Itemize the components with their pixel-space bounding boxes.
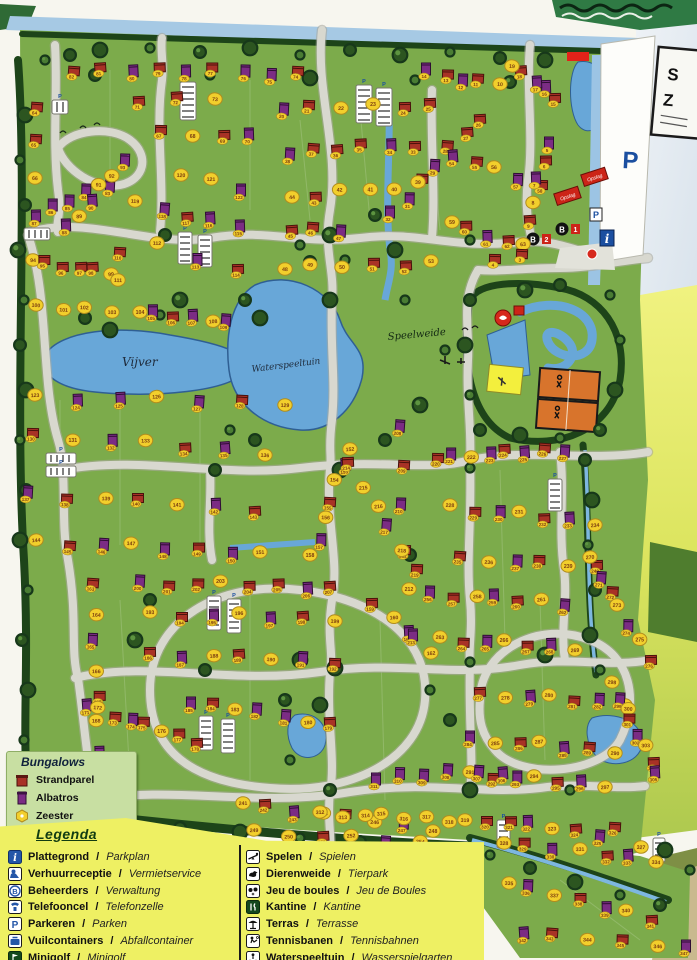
svg-text:21: 21 [304, 109, 310, 114]
svg-text:96: 96 [58, 271, 64, 276]
plot-marker: 290 [607, 746, 622, 759]
tree-icon [146, 44, 155, 53]
svg-text:131: 131 [69, 438, 78, 444]
plot-marker: 73 [207, 92, 222, 105]
svg-text:P: P [59, 447, 63, 453]
svg-text:247: 247 [398, 828, 406, 833]
svg-text:311: 311 [370, 784, 378, 789]
legend-label-nl: Kantine [266, 901, 306, 913]
plot-marker: 89 [72, 210, 87, 223]
svg-text:330: 330 [547, 854, 555, 859]
svg-text:147: 147 [127, 541, 136, 547]
svg-text:111: 111 [114, 278, 122, 284]
svg-text:229: 229 [469, 515, 477, 520]
svg-text:115: 115 [234, 231, 242, 236]
svg-text:189: 189 [233, 658, 241, 664]
svg-text:59: 59 [449, 220, 455, 226]
dark-green-patch [648, 542, 697, 642]
svg-text:333: 333 [623, 860, 631, 866]
svg-text:93: 93 [120, 165, 126, 170]
svg-text:282: 282 [593, 704, 601, 709]
plot-marker: 91 [91, 178, 106, 191]
plot-marker: 66 [28, 172, 43, 185]
zeester-icon [15, 809, 29, 823]
plot-marker: 258 [470, 590, 485, 603]
svg-text:31: 31 [405, 204, 411, 209]
svg-text:145: 145 [64, 549, 72, 555]
tree-icon [494, 52, 506, 64]
svg-text:P: P [203, 229, 207, 235]
plot-marker: 303 [638, 739, 653, 752]
svg-text:126: 126 [152, 394, 161, 401]
svg-text:206: 206 [302, 593, 310, 598]
svg-text:325: 325 [593, 841, 601, 847]
tree-icon [458, 338, 473, 353]
legend-label-de: Kantine [323, 901, 360, 913]
tree-icon [16, 436, 25, 445]
tree-icon [20, 296, 29, 305]
svg-text:77: 77 [208, 71, 214, 76]
svg-text:249: 249 [250, 828, 259, 834]
svg-text:316: 316 [399, 816, 408, 823]
beheerders-icon: B [8, 884, 22, 898]
legend-label-de: Terrasse [316, 918, 358, 930]
plot-marker: 193 [143, 606, 158, 619]
legend-label-de: Parken [92, 918, 127, 930]
tree-icon [585, 493, 600, 508]
plot-marker: 126 [149, 390, 164, 403]
svg-text:86: 86 [48, 210, 54, 215]
legend-title: Legenda [36, 826, 97, 842]
svg-text:139: 139 [102, 496, 111, 502]
svg-text:194: 194 [176, 621, 184, 626]
svg-text:88: 88 [62, 230, 68, 235]
plot-marker: 123 [28, 389, 43, 402]
svg-text:168: 168 [92, 718, 101, 724]
plot-marker: 236 [481, 555, 496, 568]
svg-text:342: 342 [519, 938, 527, 944]
tree-icon [463, 783, 478, 798]
svg-text:160: 160 [390, 615, 399, 621]
svg-text:231: 231 [515, 509, 524, 515]
tree-icon [18, 108, 33, 123]
parking-strip: P [548, 473, 562, 511]
svg-text:235: 235 [454, 559, 462, 565]
svg-text:91: 91 [95, 182, 101, 188]
svg-text:37: 37 [308, 152, 314, 157]
tree-icon [594, 424, 606, 436]
tree-icon [413, 398, 428, 413]
svg-text:125: 125 [115, 403, 123, 408]
plot-marker: 215 [356, 481, 371, 494]
svg-text:323: 323 [548, 826, 557, 832]
tree-icon [379, 434, 391, 446]
svg-text:208: 208 [393, 431, 401, 437]
vuilcontainer-icon [8, 934, 22, 948]
svg-text:97: 97 [77, 271, 83, 276]
legend-label-nl: Verhuurreceptie [28, 868, 112, 880]
plot-marker: 285 [488, 737, 503, 750]
svg-text:38: 38 [285, 159, 291, 164]
plot-marker: 63 [515, 237, 530, 250]
plot-marker: 273 [610, 599, 625, 612]
terras-icon [246, 917, 260, 931]
svg-text:19: 19 [509, 64, 515, 70]
plot-marker: 327 [634, 841, 649, 854]
svg-text:122: 122 [235, 195, 243, 200]
plot-marker: 40 [387, 183, 402, 196]
svg-text:149: 149 [193, 551, 201, 556]
svg-text:221: 221 [445, 459, 453, 464]
legend-row-reception: Verhuurreceptie/Vermietservice [8, 866, 201, 882]
svg-text:117: 117 [182, 221, 190, 227]
plot-marker: 102 [77, 301, 92, 314]
tree-icon [426, 686, 435, 695]
svg-text:290: 290 [610, 751, 619, 757]
plot-marker: 234 [587, 518, 602, 531]
plot-marker: 8 [525, 196, 540, 209]
svg-text:55: 55 [472, 165, 478, 170]
legend-label-de: Minigolf [87, 952, 125, 960]
svg-text:P: P [58, 94, 62, 100]
svg-text:265: 265 [481, 646, 489, 651]
tree-icon [606, 291, 615, 300]
svg-text:39: 39 [415, 180, 421, 186]
kantine-building [487, 364, 524, 394]
svg-text:307: 307 [472, 776, 480, 782]
strandparel-icon [15, 773, 29, 787]
plot-marker: 22 [334, 102, 349, 115]
svg-text:243: 243 [289, 817, 297, 823]
svg-text:281: 281 [568, 704, 576, 709]
svg-text:103: 103 [108, 310, 117, 316]
tree-icon [64, 49, 76, 61]
svg-text:144: 144 [32, 538, 41, 545]
svg-text:58: 58 [537, 189, 543, 194]
tree-icon [388, 243, 403, 258]
svg-text:18: 18 [517, 74, 523, 79]
plot-marker: 162 [423, 646, 438, 659]
svg-text:35: 35 [356, 147, 362, 152]
svg-text:95: 95 [40, 264, 46, 269]
plot-marker: 196 [232, 607, 247, 620]
svg-text:113: 113 [192, 265, 200, 270]
plot-marker: 180 [300, 716, 315, 729]
tree-icon [393, 48, 408, 63]
svg-text:267: 267 [522, 649, 530, 654]
svg-text:220: 220 [432, 462, 440, 467]
svg-text:72: 72 [173, 100, 179, 105]
plot-marker: 249 [247, 824, 262, 837]
park-map-page: P Opslag Opslag P i B 1 B 2 [0, 0, 697, 960]
svg-text:261: 261 [537, 597, 546, 604]
svg-text:250: 250 [284, 834, 293, 840]
tree-icon [654, 899, 666, 911]
svg-text:345: 345 [616, 943, 624, 948]
legend-label-de: Vermietservice [129, 868, 201, 880]
svg-text:239: 239 [564, 564, 573, 570]
plot-marker: 252 [343, 829, 358, 842]
svg-text:278: 278 [501, 695, 510, 701]
tree-icon [249, 434, 261, 446]
svg-text:241: 241 [239, 801, 248, 807]
tree-icon [296, 241, 305, 250]
plot-marker: 19 [504, 59, 519, 72]
plot-marker: 269 [567, 643, 582, 656]
tree-icon [568, 875, 583, 890]
tree-icon [538, 53, 553, 68]
svg-text:336: 336 [522, 891, 530, 896]
svg-text:138: 138 [61, 502, 69, 507]
svg-text:65: 65 [31, 142, 37, 147]
svg-text:163: 163 [87, 586, 95, 592]
svg-text:212: 212 [405, 587, 414, 593]
svg-text:143: 143 [249, 515, 257, 520]
plot-marker: 344 [580, 933, 595, 946]
plot-marker: 144 [28, 533, 43, 546]
bungalow-type-zeester: Zeester [15, 808, 73, 824]
minigolf-icon [8, 951, 22, 960]
plot-marker: 346 [650, 940, 665, 953]
svg-text:60: 60 [462, 229, 468, 234]
svg-text:248: 248 [429, 829, 438, 835]
svg-text:110: 110 [114, 255, 122, 260]
vijver-label: Vijver [122, 355, 159, 369]
red-sign [567, 52, 589, 61]
legend-label-nl: Spelen [266, 851, 302, 863]
svg-text:284: 284 [464, 742, 472, 747]
svg-text:P: P [362, 79, 366, 85]
svg-text:347: 347 [680, 951, 688, 956]
svg-text:104: 104 [136, 310, 145, 316]
tree-icon [466, 658, 475, 667]
svg-text:187: 187 [176, 662, 184, 667]
legend-row-beheerders: BBeheerders/Verwaltung [8, 883, 160, 899]
tree-icon [194, 46, 206, 58]
tree-icon [11, 243, 26, 258]
svg-text:89: 89 [76, 214, 82, 220]
svg-text:32: 32 [385, 217, 391, 222]
svg-text:262: 262 [558, 610, 566, 616]
tree-icon [226, 426, 235, 435]
svg-text:159: 159 [366, 607, 374, 612]
plot-marker: 216 [371, 500, 386, 513]
b2-letter: B [530, 236, 536, 245]
svg-text:164: 164 [92, 612, 101, 618]
svg-text:213: 213 [407, 640, 415, 645]
svg-text:85: 85 [65, 206, 71, 211]
svg-text:P: P [657, 832, 661, 838]
legend-label-nl: Parkeren [28, 918, 75, 930]
tree-icon [173, 293, 188, 308]
parking-strip: P [221, 713, 235, 753]
plot-marker: 92 [104, 169, 119, 182]
svg-text:205: 205 [273, 587, 281, 592]
svg-text:40: 40 [391, 187, 397, 193]
svg-text:341: 341 [646, 924, 654, 929]
plot-marker: 42 [332, 183, 347, 196]
plot-marker: 44 [284, 190, 299, 203]
plot-marker: 168 [89, 714, 104, 727]
plot-marker: 298 [604, 675, 619, 688]
svg-text:257: 257 [448, 601, 456, 606]
svg-text:26: 26 [476, 123, 482, 128]
plot-marker: 328 [497, 837, 512, 850]
svg-text:181: 181 [279, 720, 287, 726]
legend-row-minigolf: Minigolf/Minigolf [8, 950, 125, 960]
svg-text:41: 41 [368, 187, 374, 193]
svg-text:226: 226 [538, 451, 546, 457]
svg-text:146: 146 [98, 549, 106, 554]
svg-text:P: P [12, 920, 19, 931]
svg-text:310: 310 [394, 779, 402, 784]
legend-row-waterspeeltuin: Waterspeeltuin/Wasserspielgarten [246, 950, 452, 960]
svg-text:193: 193 [146, 610, 155, 616]
plot-marker: 59 [445, 216, 459, 228]
svg-text:312: 312 [316, 810, 325, 816]
svg-text:308: 308 [442, 775, 450, 780]
svg-text:303: 303 [641, 743, 650, 749]
tree-icon [554, 279, 566, 291]
svg-text:218: 218 [397, 548, 406, 554]
svg-text:66: 66 [32, 176, 38, 182]
svg-text:43: 43 [311, 200, 317, 205]
svg-text:27: 27 [463, 136, 469, 141]
svg-text:20: 20 [279, 114, 285, 119]
plot-marker: 151 [253, 546, 268, 559]
legend-row-terras: Terras/Terrasse [246, 916, 358, 932]
svg-text:324: 324 [570, 832, 578, 838]
svg-text:335: 335 [504, 881, 513, 887]
plot-marker: 190 [263, 653, 278, 666]
svg-text:305: 305 [649, 777, 657, 782]
svg-text:186: 186 [144, 656, 152, 661]
tree-icon [243, 41, 258, 56]
svg-text:309: 309 [418, 780, 426, 785]
svg-text:252: 252 [347, 833, 356, 840]
svg-text:68: 68 [190, 134, 196, 140]
svg-text:54: 54 [449, 161, 455, 166]
svg-text:13: 13 [443, 78, 449, 83]
tree-icon [524, 862, 536, 874]
svg-text:48: 48 [282, 267, 288, 273]
svg-text:33: 33 [411, 150, 417, 155]
svg-text:269: 269 [571, 648, 580, 654]
tree-icon [411, 76, 420, 85]
tree-icon [446, 48, 455, 57]
tree-icon [518, 283, 533, 298]
tree-icon [616, 891, 625, 900]
svg-text:P: P [382, 82, 386, 88]
svg-text:101: 101 [59, 307, 68, 313]
tennis-courts [536, 368, 600, 432]
svg-text:259: 259 [488, 600, 496, 605]
svg-text:P: P [212, 590, 216, 596]
svg-text:174: 174 [127, 724, 135, 729]
plot-marker: 141 [170, 498, 185, 511]
svg-text:246: 246 [370, 820, 379, 826]
svg-text:199: 199 [330, 619, 339, 626]
tree-icon [441, 346, 450, 355]
plot-marker: 261 [534, 593, 549, 606]
svg-text:343: 343 [546, 936, 554, 942]
tree-icon [19, 199, 31, 211]
reception-icon [8, 867, 22, 881]
svg-text:279: 279 [525, 701, 533, 707]
plot-marker: 100 [28, 298, 43, 311]
tree-icon [209, 464, 221, 476]
spelen-marker [514, 306, 524, 315]
svg-text:140: 140 [132, 502, 140, 507]
tree-icon [103, 323, 118, 338]
svg-text:180: 180 [304, 720, 313, 727]
plot-marker: 41 [363, 183, 377, 195]
svg-text:313: 313 [338, 815, 347, 821]
svg-text:57: 57 [513, 185, 519, 190]
svg-text:339: 339 [601, 913, 609, 918]
svg-text:34: 34 [387, 150, 393, 155]
svg-text:173: 173 [109, 720, 117, 725]
tree-icon [584, 541, 593, 550]
svg-text:219: 219 [411, 572, 419, 577]
svg-text:130: 130 [27, 437, 35, 442]
svg-text:203: 203 [216, 579, 225, 585]
svg-text:338: 338 [575, 902, 583, 907]
plot-marker: 335 [501, 876, 516, 889]
svg-text:346: 346 [653, 944, 662, 950]
plot-marker: 158 [303, 549, 317, 561]
plot-marker: 39 [411, 176, 426, 189]
tree-icon [239, 294, 251, 306]
svg-text:171: 171 [82, 710, 90, 716]
plot-marker: 280 [541, 688, 556, 701]
legend-label-de: Jeu de Boules [356, 885, 426, 897]
svg-text:183: 183 [231, 707, 240, 713]
svg-text:B: B [12, 887, 18, 896]
svg-text:12: 12 [458, 85, 464, 90]
plot-marker: 278 [498, 691, 513, 704]
svg-text:326: 326 [609, 830, 617, 835]
plot-marker: 103 [105, 306, 120, 319]
tree-icon [466, 236, 475, 245]
legend-label-nl: Tennisbanen [266, 935, 333, 947]
plot-marker: 53 [423, 254, 438, 267]
tree-icon [556, 434, 565, 443]
info-icon: i [8, 850, 22, 864]
svg-text:155: 155 [324, 505, 332, 510]
svg-text:114: 114 [232, 273, 240, 278]
svg-text:337: 337 [550, 893, 559, 899]
bungalow-type-albatros: Albatros [15, 790, 79, 806]
svg-text:273: 273 [613, 603, 622, 609]
svg-text:286: 286 [515, 746, 523, 751]
svg-text:150: 150 [227, 558, 235, 563]
svg-text:224: 224 [499, 453, 507, 458]
tree-icon [474, 424, 486, 436]
svg-text:75: 75 [267, 80, 273, 85]
svg-text:83: 83 [105, 191, 111, 196]
svg-text:210: 210 [395, 509, 403, 514]
tree-icon [466, 391, 475, 400]
svg-text:216: 216 [374, 504, 383, 511]
svg-text:223: 223 [486, 458, 494, 463]
svg-text:230: 230 [495, 517, 503, 522]
legend-label-nl: Waterspeeltuin [266, 952, 344, 960]
tree-icon [658, 843, 673, 858]
svg-text:69: 69 [220, 139, 226, 144]
svg-text:116: 116 [205, 223, 213, 228]
svg-text:157: 157 [315, 545, 323, 550]
